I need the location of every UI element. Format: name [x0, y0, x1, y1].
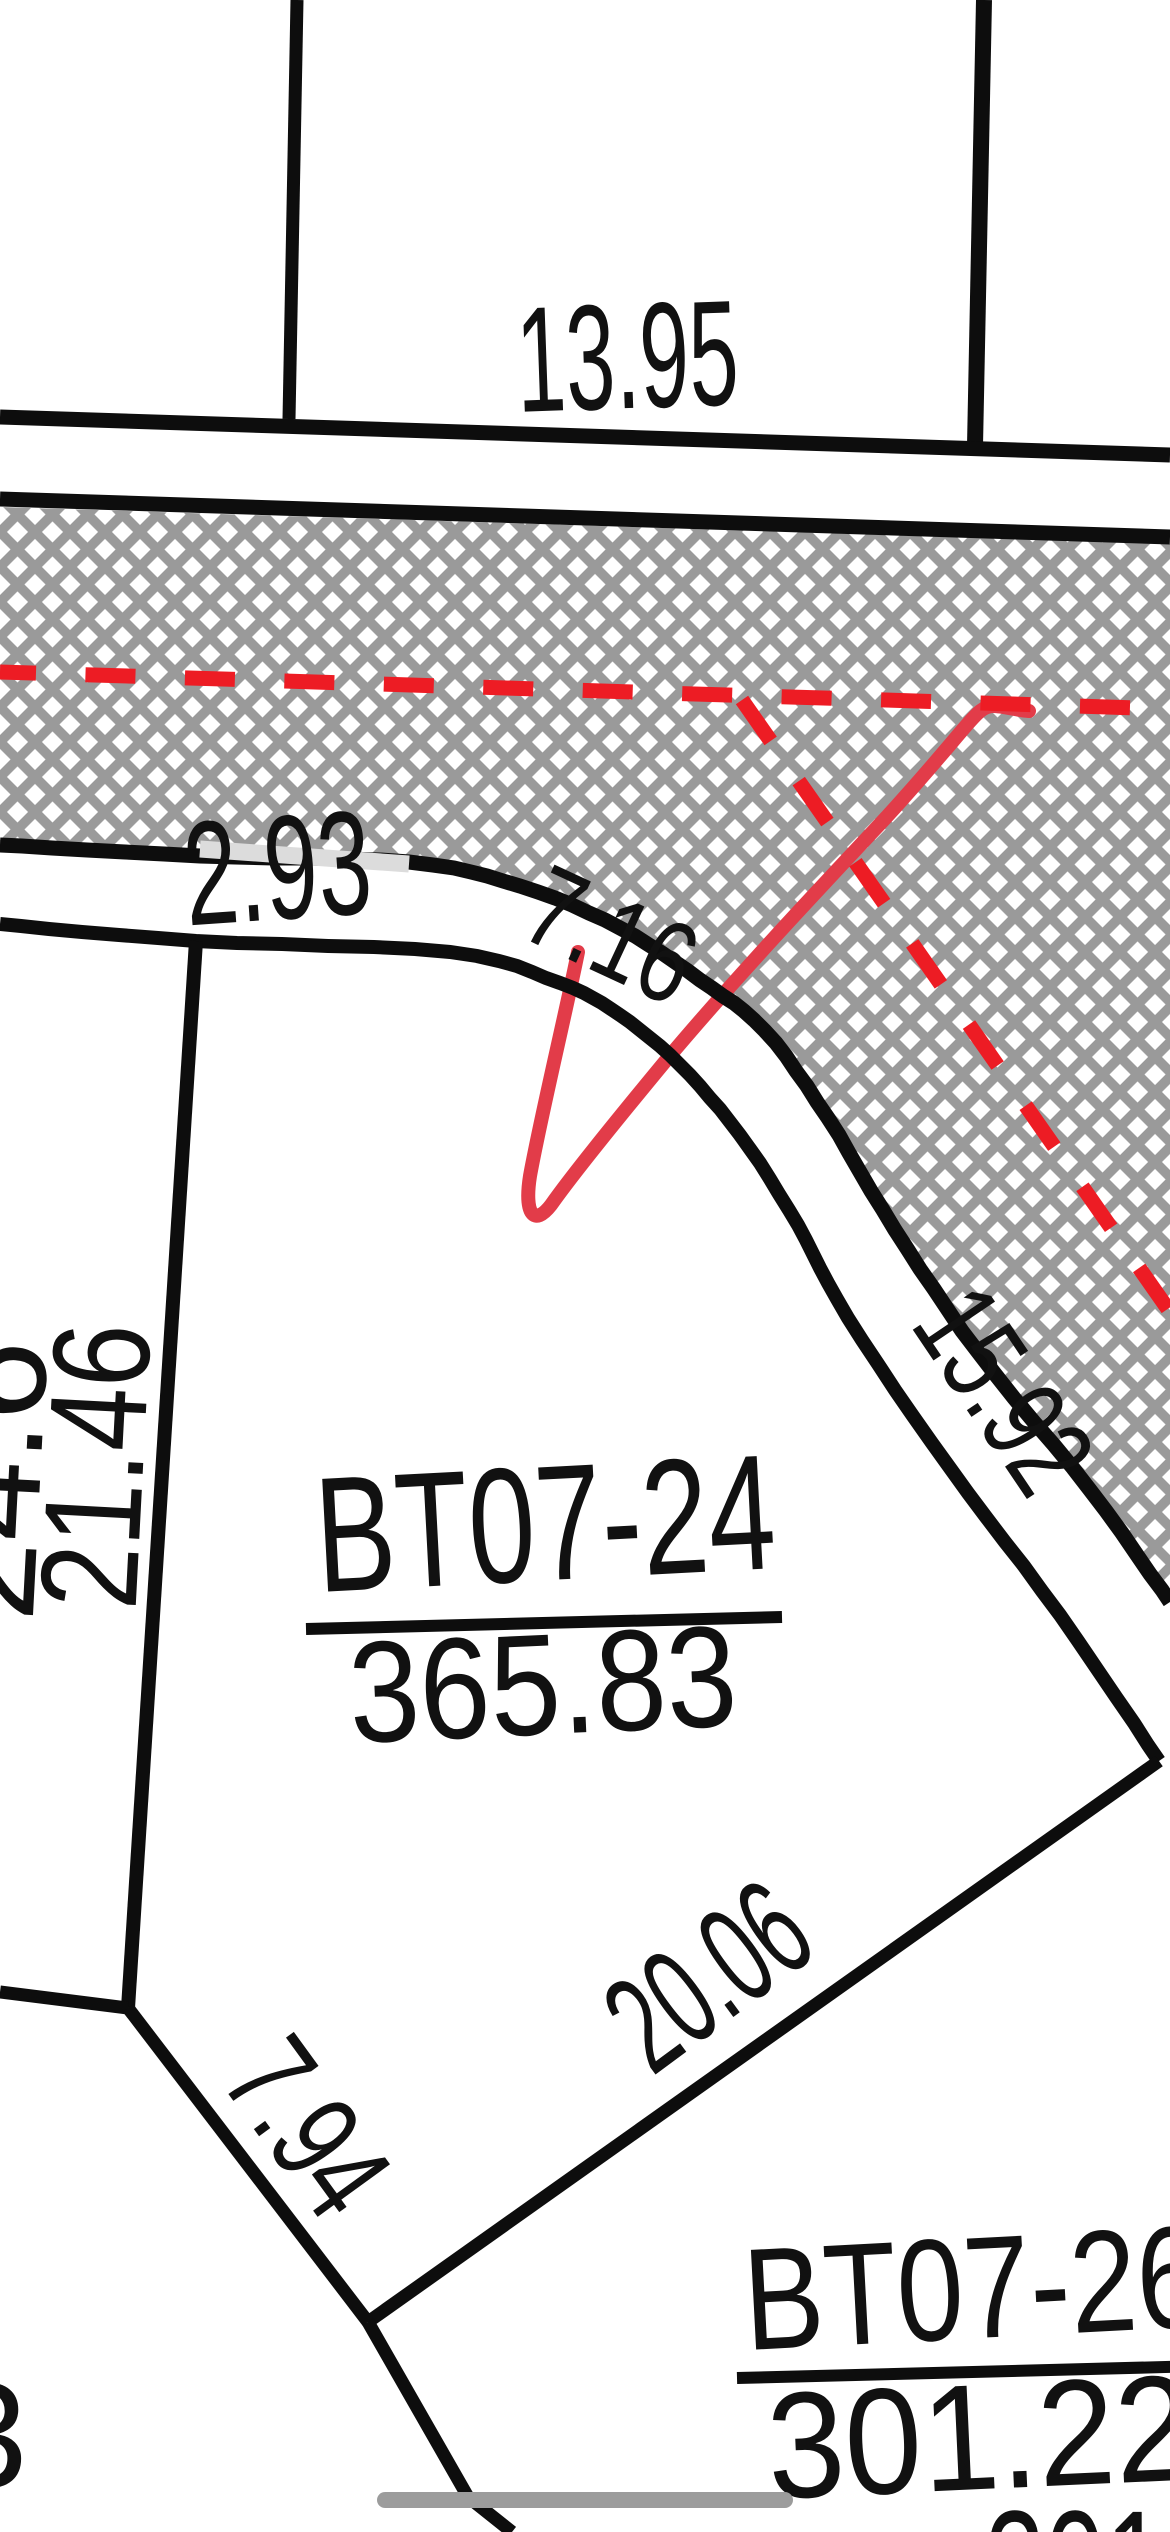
svg-text:301.2: 301.2 — [985, 2477, 1170, 2532]
svg-text:365.83: 365.83 — [345, 1595, 740, 1773]
svg-text:3: 3 — [0, 2351, 28, 2519]
svg-text:13.95: 13.95 — [513, 268, 741, 444]
svg-text:0: 0 — [617, 2513, 678, 2532]
svg-text:2.93: 2.93 — [178, 780, 376, 958]
